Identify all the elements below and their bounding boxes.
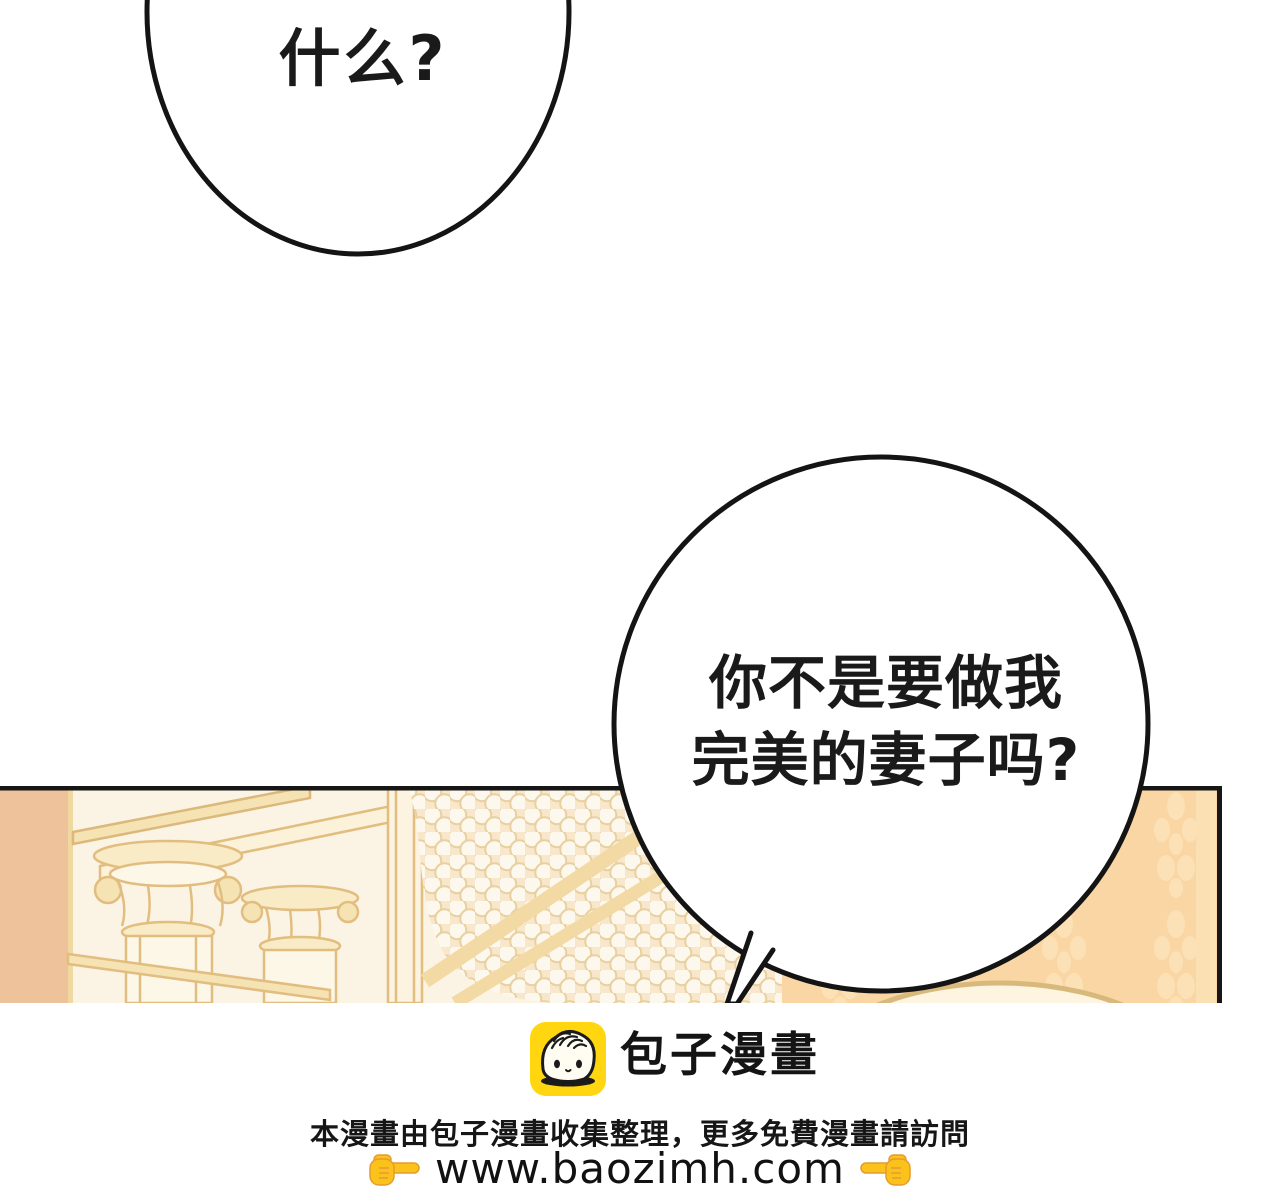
chandelier-beads <box>408 786 782 1003</box>
panel-right-border <box>1217 786 1222 1003</box>
damask-wall <box>752 786 1218 1003</box>
main-bubble-text: 你不是要做我 完美的妻子吗? <box>631 645 1141 799</box>
brand-name: 包子漫畫 <box>620 1016 820 1085</box>
footer: 包子漫畫 本漫畫由包子漫畫收集整理，更多免費漫畫請訪問 www.baozimh.… <box>0 1003 1280 1200</box>
background-panel <box>0 786 1222 1003</box>
point-left-icon <box>859 1149 911 1198</box>
palace-artwork <box>0 786 1222 1003</box>
main-bubble-line-1: 你不是要做我 <box>631 645 1141 722</box>
footer-url-row: www.baozimh.com <box>0 1144 1280 1198</box>
baozi-logo <box>530 1022 606 1096</box>
site-url[interactable]: www.baozimh.com <box>435 1144 845 1193</box>
top-bubble-line: 什么? <box>279 22 448 95</box>
baozi-logo-icon <box>530 1022 606 1096</box>
left-wall-strip <box>0 786 68 1003</box>
point-right-icon <box>369 1149 421 1198</box>
top-bubble-text: 什么? <box>168 8 558 98</box>
comic-page: 什么? 你不是要做我 完美的妻子吗? 包子漫畫 本漫畫由包子漫畫收集整理，更多免… <box>0 0 1280 1200</box>
main-bubble-line-2: 完美的妻子吗? <box>631 722 1141 799</box>
